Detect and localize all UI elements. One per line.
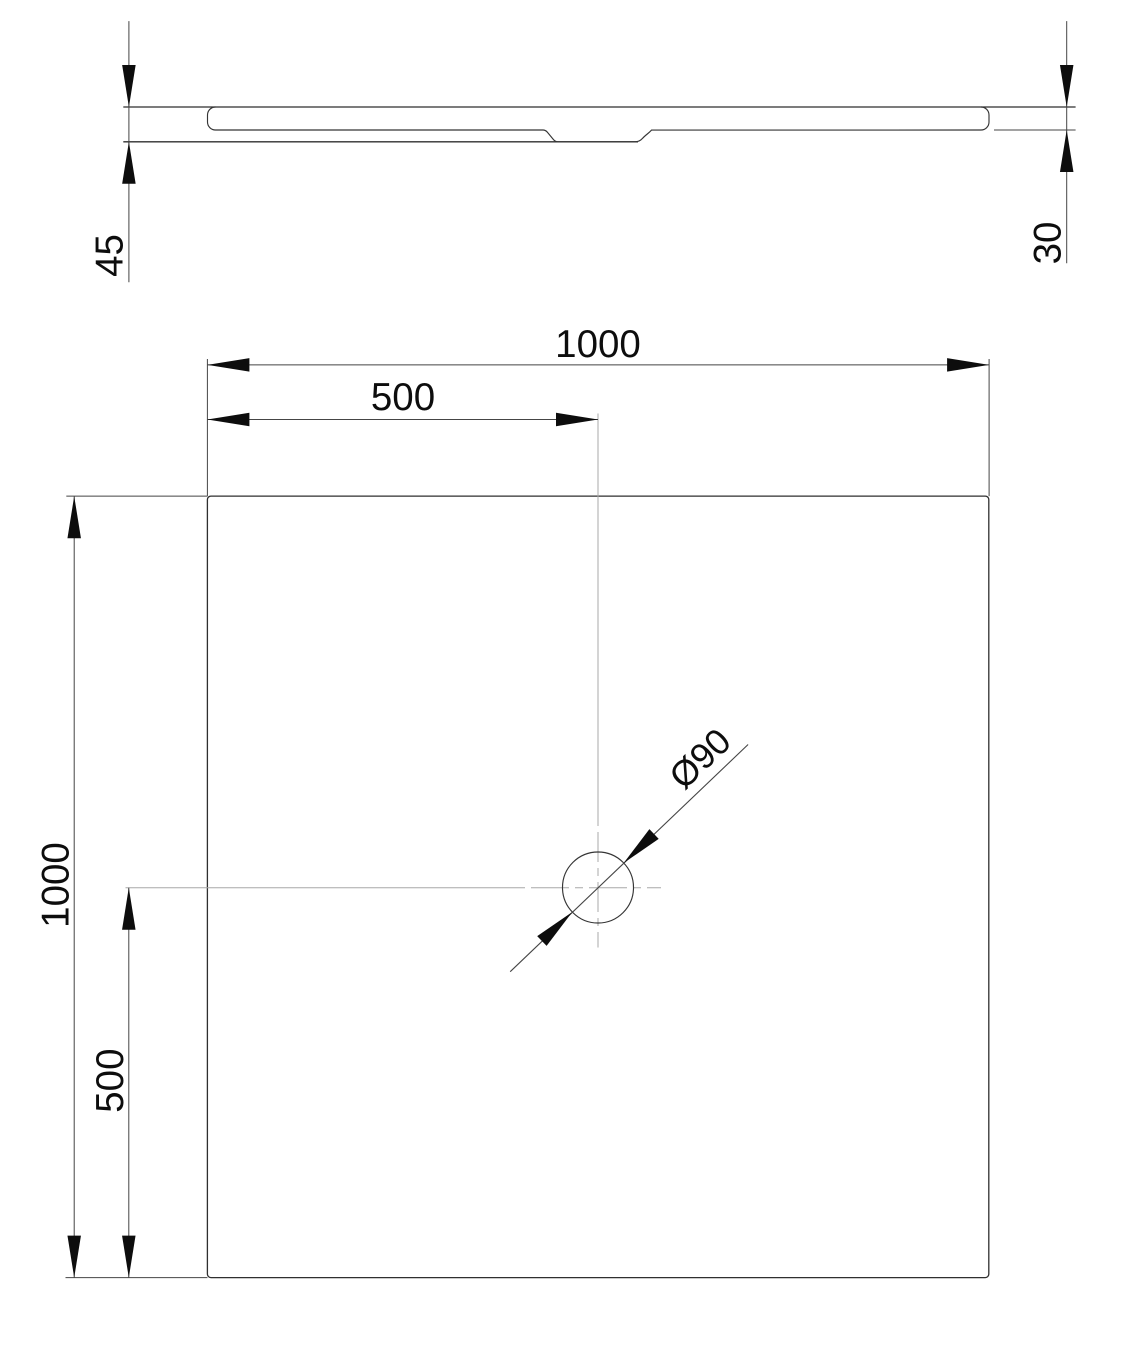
svg-text:500: 500 xyxy=(89,1048,132,1112)
svg-text:1000: 1000 xyxy=(35,842,78,928)
svg-text:45: 45 xyxy=(89,234,132,277)
svg-text:1000: 1000 xyxy=(555,323,641,366)
svg-text:500: 500 xyxy=(371,376,435,419)
svg-text:30: 30 xyxy=(1026,222,1069,265)
